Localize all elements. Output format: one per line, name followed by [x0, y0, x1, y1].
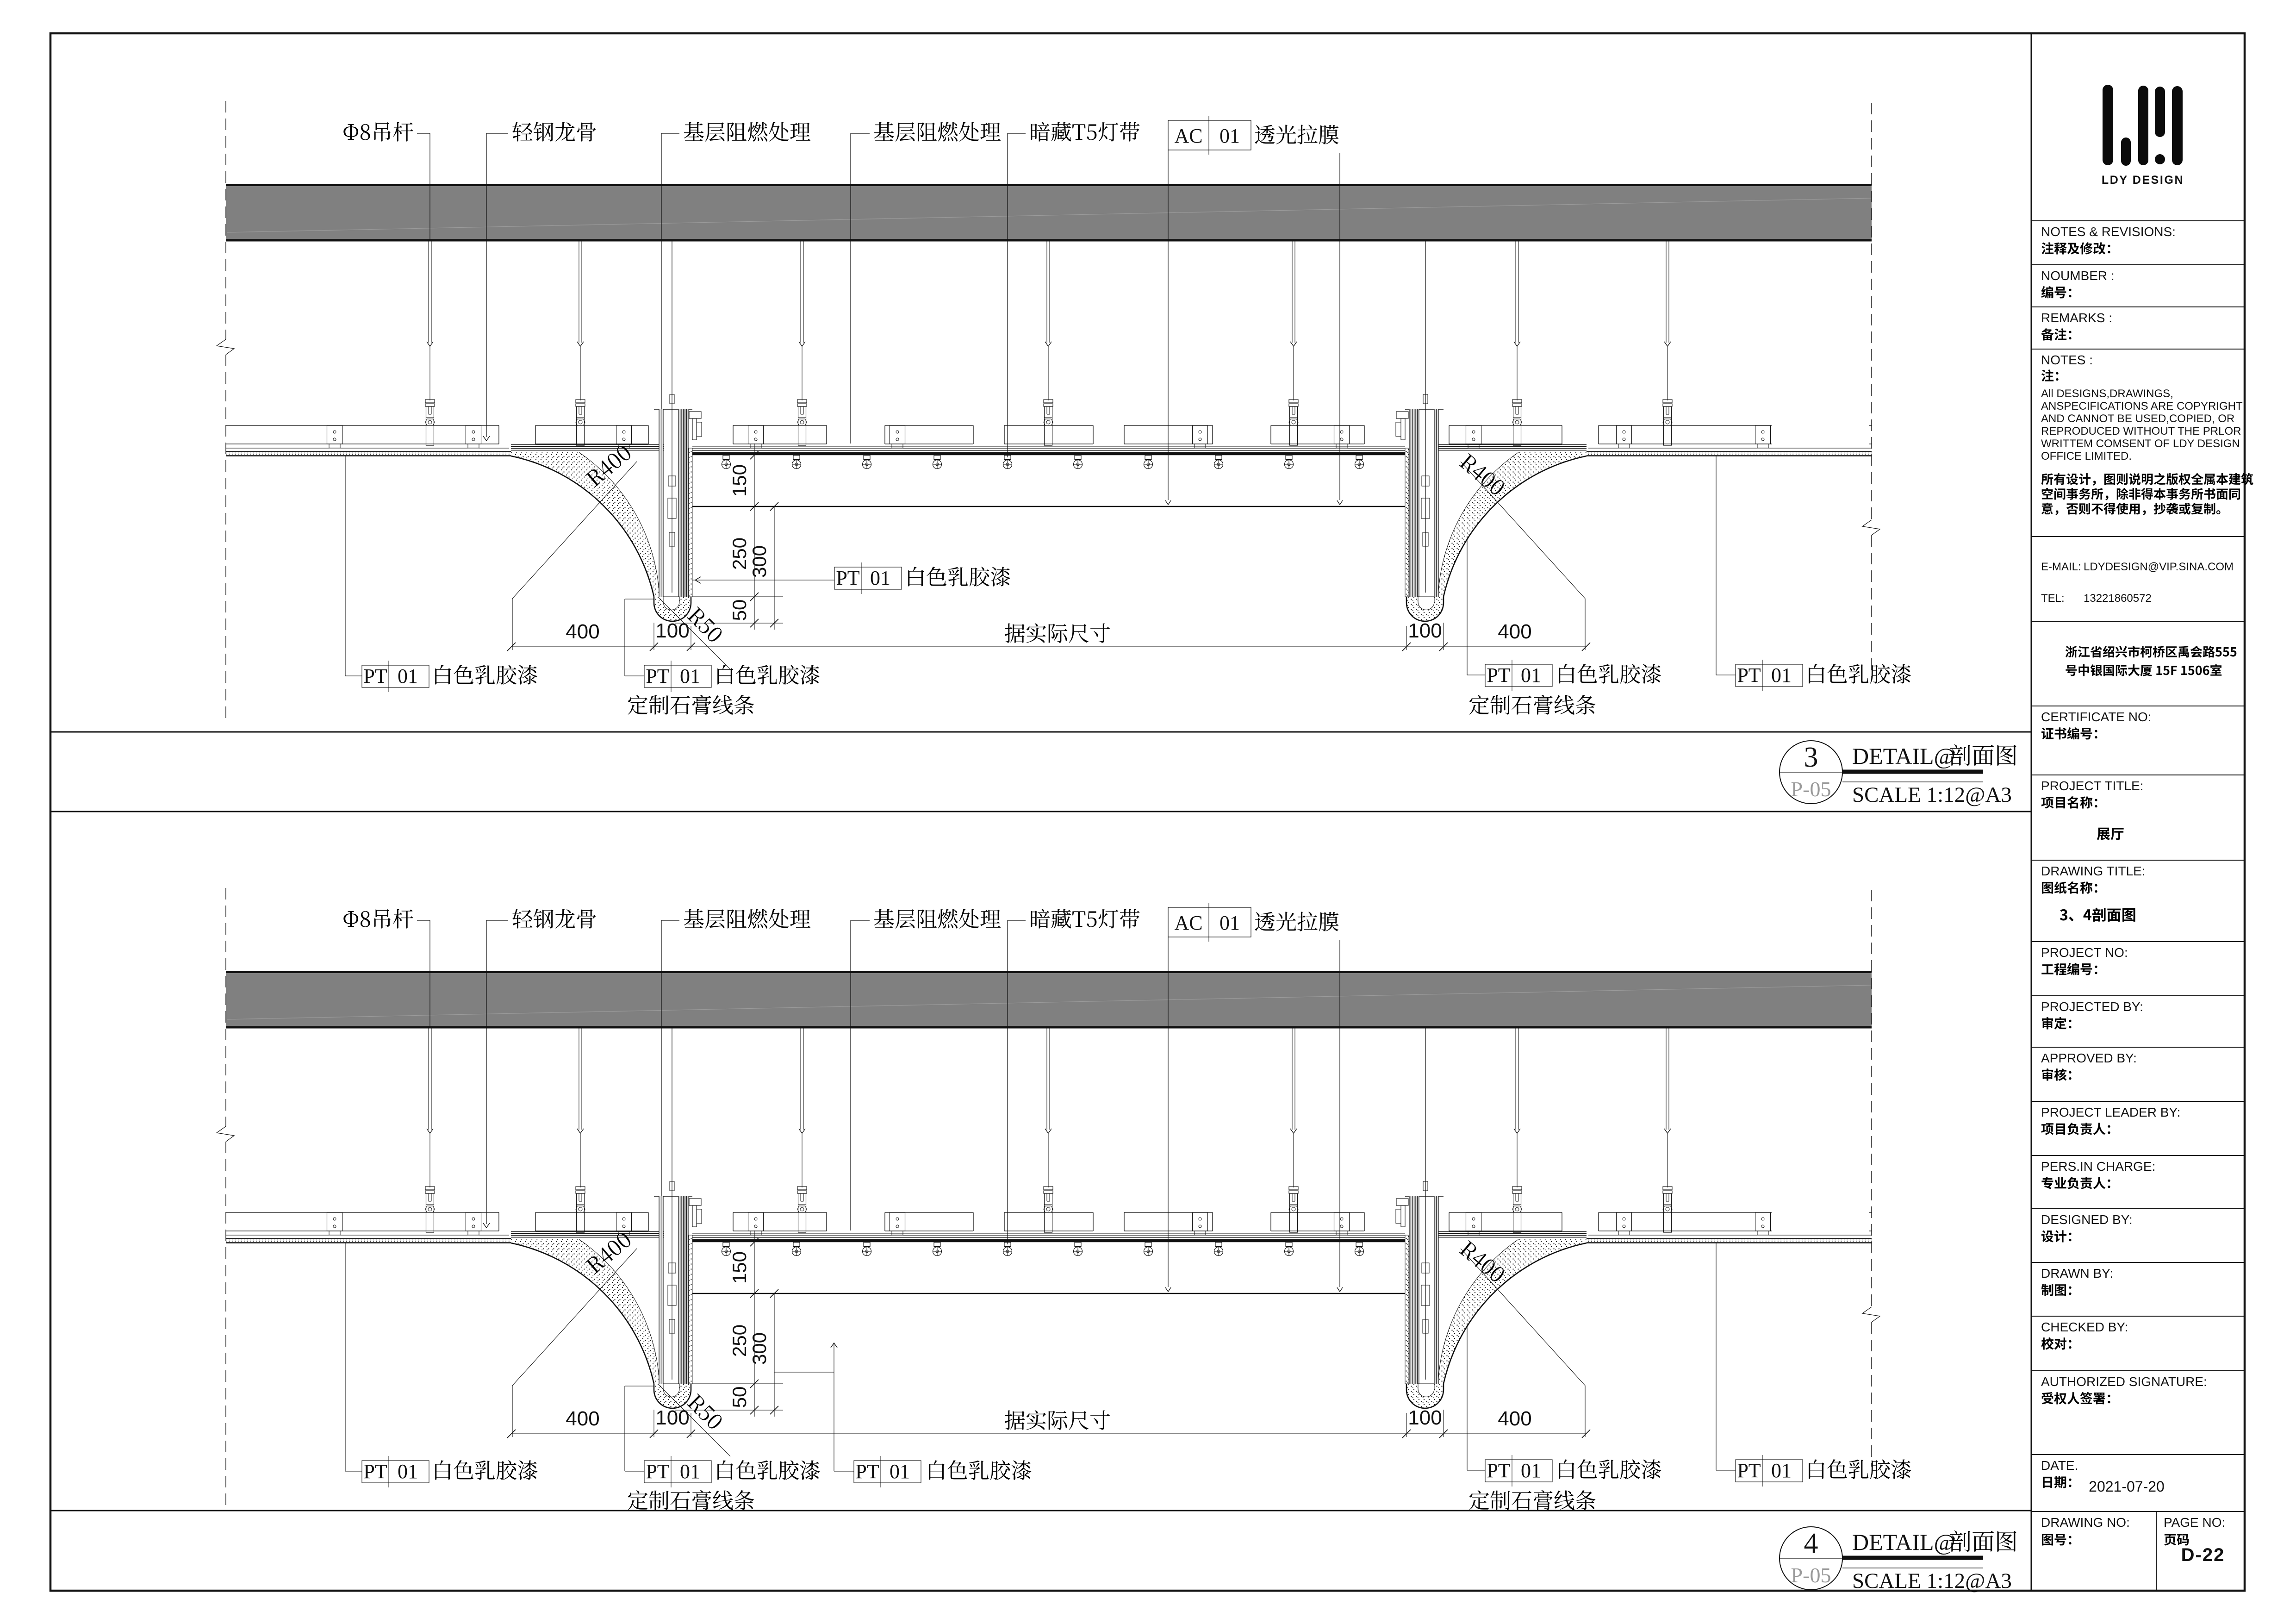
- svg-text:100: 100: [1408, 619, 1442, 642]
- svg-text:PT: PT: [836, 567, 859, 589]
- svg-text:PT: PT: [1737, 1459, 1761, 1482]
- svg-text:400: 400: [1498, 620, 1531, 643]
- svg-text:DRAWING TITLE:: DRAWING TITLE:: [2041, 864, 2146, 878]
- svg-text:PT: PT: [363, 665, 387, 687]
- svg-text:50: 50: [728, 600, 750, 621]
- svg-text:APPROVED BY:: APPROVED BY:: [2041, 1051, 2137, 1065]
- svg-text:AND CANNOT BE USED,COPIED, OR: AND CANNOT BE USED,COPIED, OR: [2041, 412, 2234, 425]
- svg-text:CERTIFICATE NO:: CERTIFICATE NO:: [2041, 710, 2152, 724]
- svg-text:DATE.: DATE.: [2041, 1458, 2078, 1473]
- svg-text:01: 01: [1771, 1459, 1792, 1482]
- svg-text:01: 01: [870, 567, 890, 589]
- svg-text:REPRODUCED WITHOUT THE PRLOR: REPRODUCED WITHOUT THE PRLOR: [2041, 425, 2241, 437]
- svg-text:NOUMBER :: NOUMBER :: [2041, 269, 2115, 283]
- svg-text:PROJECTED BY:: PROJECTED BY:: [2041, 999, 2143, 1014]
- svg-text:SCALE 1:12@A3: SCALE 1:12@A3: [1852, 783, 2012, 807]
- svg-text:All DESIGNS,DRAWINGS,: All DESIGNS,DRAWINGS,: [2041, 387, 2173, 400]
- svg-text:DRAWING NO:: DRAWING NO:: [2041, 1515, 2130, 1530]
- svg-text:LDY DESIGN: LDY DESIGN: [2102, 174, 2184, 187]
- svg-text:PT: PT: [1737, 664, 1761, 687]
- svg-text:PT: PT: [855, 1460, 879, 1483]
- svg-text:3: 3: [1804, 742, 1818, 773]
- svg-text:PT: PT: [363, 1460, 387, 1483]
- svg-text:AC: AC: [1174, 125, 1202, 147]
- svg-text:P-05: P-05: [1791, 1563, 1831, 1587]
- svg-text:TEL:: TEL:: [2041, 592, 2065, 605]
- svg-text:300: 300: [748, 545, 770, 578]
- svg-text:PERS.IN CHARGE:: PERS.IN CHARGE:: [2041, 1159, 2155, 1174]
- svg-text:E-MAIL:: E-MAIL:: [2041, 561, 2081, 573]
- svg-text:01: 01: [680, 665, 700, 687]
- svg-text:2021-07-20: 2021-07-20: [2089, 1478, 2165, 1495]
- svg-text:01: 01: [1771, 664, 1792, 687]
- svg-text:CHECKED BY:: CHECKED BY:: [2041, 1320, 2128, 1334]
- svg-text:250: 250: [728, 537, 750, 570]
- svg-text:REMARKS :: REMARKS :: [2041, 311, 2112, 325]
- svg-text:ANSPECIFICATIONS ARE COPYRIGHT: ANSPECIFICATIONS ARE COPYRIGHT: [2041, 400, 2243, 412]
- svg-text:DETAIL@: DETAIL@: [1852, 1529, 1955, 1555]
- svg-text:01: 01: [1521, 664, 1541, 687]
- svg-text:DESIGNED BY:: DESIGNED BY:: [2041, 1212, 2133, 1227]
- svg-text:PT: PT: [1487, 664, 1510, 687]
- svg-text:OFFICE LIMITED.: OFFICE LIMITED.: [2041, 450, 2132, 462]
- svg-text:AUTHORIZED SIGNATURE:: AUTHORIZED SIGNATURE:: [2041, 1374, 2207, 1389]
- svg-text:01: 01: [1220, 125, 1240, 147]
- svg-text:PROJECT TITLE:: PROJECT TITLE:: [2041, 779, 2143, 793]
- svg-text:PT: PT: [646, 1460, 669, 1483]
- svg-text:DETAIL@: DETAIL@: [1852, 743, 1955, 769]
- svg-text:01: 01: [398, 665, 418, 687]
- svg-text:DRAWN BY:: DRAWN BY:: [2041, 1266, 2113, 1280]
- svg-text:100: 100: [655, 619, 689, 642]
- svg-text:01: 01: [680, 1460, 700, 1483]
- svg-text:PT: PT: [646, 665, 669, 687]
- svg-text:4: 4: [1804, 1528, 1818, 1559]
- svg-text:150: 150: [728, 464, 750, 497]
- svg-text:NOTES & REVISIONS:: NOTES & REVISIONS:: [2041, 225, 2176, 239]
- svg-text:P-05: P-05: [1791, 777, 1831, 801]
- svg-text:LDYDESIGN@VIP.SINA.COM: LDYDESIGN@VIP.SINA.COM: [2084, 561, 2234, 573]
- svg-text:NOTES :: NOTES :: [2041, 353, 2093, 367]
- svg-text:D-22: D-22: [2181, 1545, 2225, 1565]
- svg-text:PROJECT LEADER BY:: PROJECT LEADER BY:: [2041, 1105, 2180, 1119]
- svg-text:13221860572: 13221860572: [2084, 592, 2152, 605]
- svg-text:01: 01: [1521, 1459, 1541, 1482]
- svg-text:PAGE NO:: PAGE NO:: [2164, 1515, 2225, 1530]
- svg-text:SCALE 1:12@A3: SCALE 1:12@A3: [1852, 1569, 2012, 1593]
- svg-text:01: 01: [398, 1460, 418, 1483]
- svg-text:WRITTEM COMSENT OF LDY DESIGN: WRITTEM COMSENT OF LDY DESIGN: [2041, 437, 2240, 450]
- svg-text:PROJECT NO:: PROJECT NO:: [2041, 945, 2128, 960]
- svg-text:PT: PT: [1487, 1459, 1510, 1482]
- svg-text:400: 400: [566, 620, 599, 643]
- svg-text:01: 01: [890, 1460, 910, 1483]
